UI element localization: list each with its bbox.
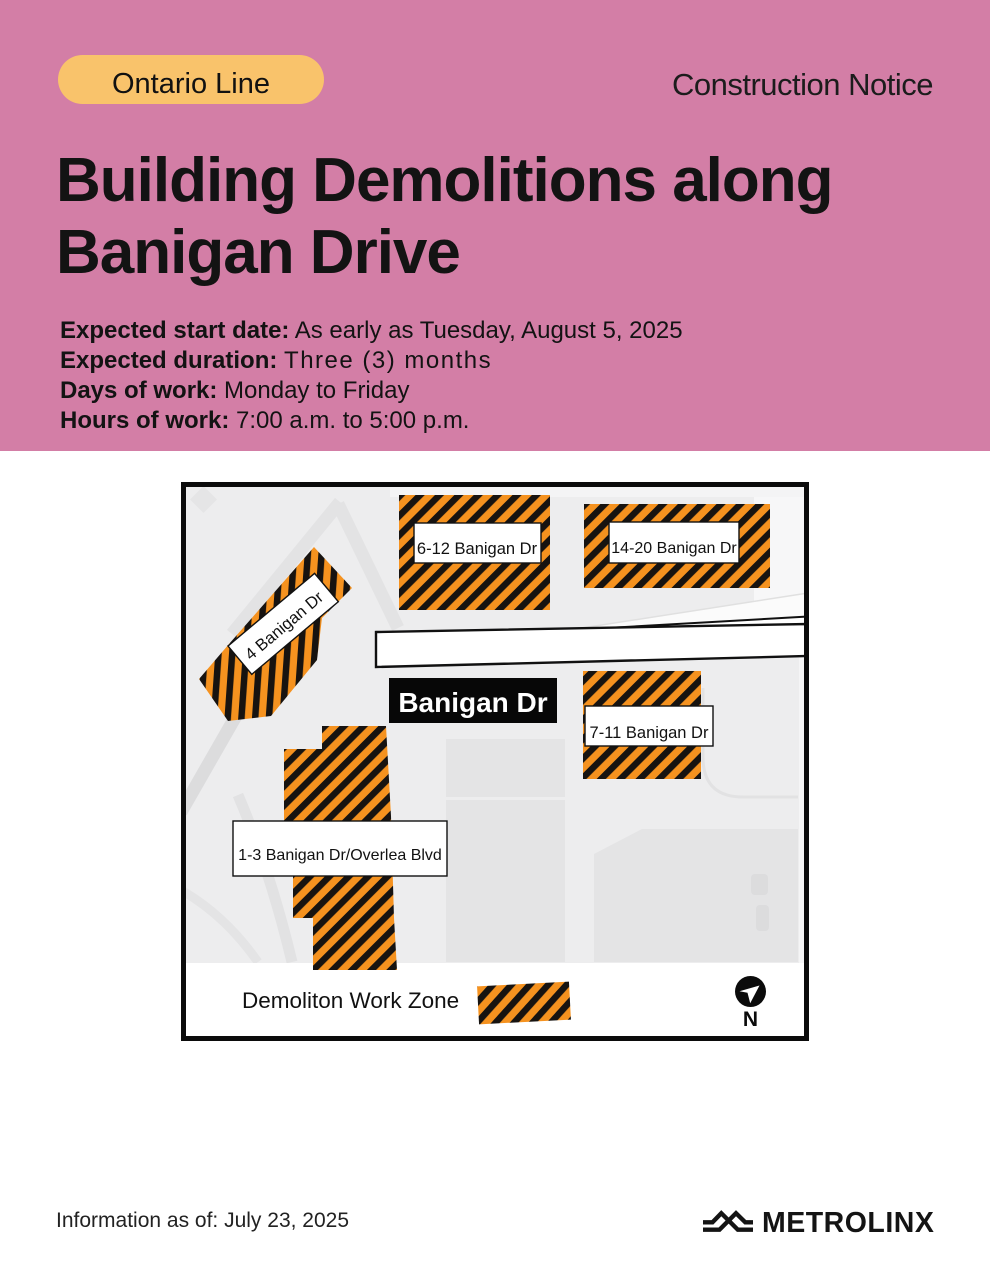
svg-text:N: N xyxy=(743,1008,758,1031)
svg-text:14-20 Banigan Dr: 14-20 Banigan Dr xyxy=(611,540,737,557)
svg-text:METROLINX: METROLINX xyxy=(762,1207,934,1239)
svg-text:Demoliton Work Zone: Demoliton Work Zone xyxy=(242,988,459,1013)
svg-text:Banigan Dr: Banigan Dr xyxy=(398,687,547,718)
svg-text:7-11 Banigan Dr: 7-11 Banigan Dr xyxy=(590,724,709,742)
svg-text:6-12 Banigan Dr: 6-12 Banigan Dr xyxy=(417,540,538,558)
svg-text:1-3 Banigan Dr/Overlea Blvd: 1-3 Banigan Dr/Overlea Blvd xyxy=(238,847,442,864)
